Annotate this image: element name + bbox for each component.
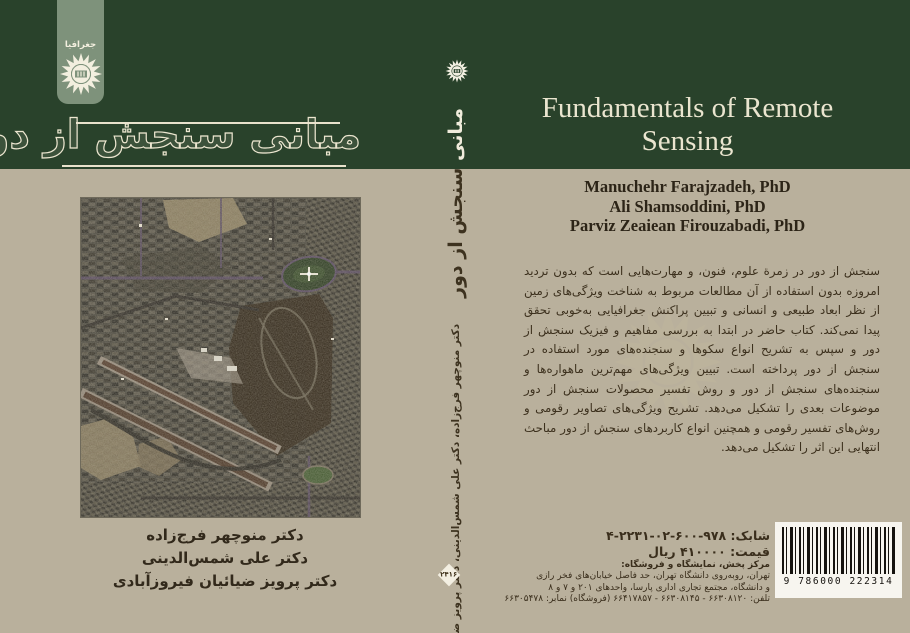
spine-samt-logo-icon xyxy=(445,59,469,83)
front-title: Fundamentals of Remote Sensing xyxy=(465,92,910,158)
address-line-2: و دانشگاه، مجتمع تجاری اداری پارسا، واحد… xyxy=(450,583,770,594)
back-title-calligraphy: مبانی سنجش از دور xyxy=(45,102,361,168)
front-authors-list: Manuchehr Farajzadeh, PhD Ali Shamsoddin… xyxy=(465,177,910,236)
price-text: قیمت: ۴۱۰۰۰۰ ریال xyxy=(450,544,770,560)
phone-line: تلفن: ۶۶۳۰۸۱۲۰ - ۶۶۳۰۸۱۴۵ - ۶۶۴۱۷۸۵۷ (فر… xyxy=(450,594,770,605)
imprint-block: شابک: ۹۷۸-۶۰۰-۰۲-۲۲۳۱-۴ قیمت: ۴۱۰۰۰۰ ریا… xyxy=(450,528,770,605)
store-heading: مرکز پخش، نمایشگاه و فروشگاه: xyxy=(450,560,770,571)
front-title-line2: Sensing xyxy=(465,125,910,158)
spine-title: مبانی سنجش از دور xyxy=(445,108,467,298)
isbn-text: شابک: ۹۷۸-۶۰۰-۰۲-۲۲۳۱-۴ xyxy=(450,528,770,544)
front-author-1: Manuchehr Farajzadeh, PhD xyxy=(465,177,910,197)
samt-publisher-logo-icon xyxy=(59,51,103,97)
barcode-bars xyxy=(782,527,896,574)
back-author-3: دکتر پرویز ضیائیان فیروزآبادی xyxy=(95,570,355,593)
front-author-3: Parviz Zeaiean Firouzabadi, PhD xyxy=(465,216,910,236)
satellite-photo xyxy=(80,197,361,518)
front-author-2: Ali Shamsoddini, PhD xyxy=(465,197,910,217)
back-authors-list: دکتر منوچهر فرج‌زاده دکتر علی شمس‌الدینی… xyxy=(95,524,355,593)
front-title-line1: Fundamentals of Remote xyxy=(465,92,910,125)
barcode: 9 786000 222314 xyxy=(775,522,902,598)
category-band: جغرافيا xyxy=(57,0,104,104)
book-cover-spread: جغرافيا مبانی سنجش از دور xyxy=(0,0,910,633)
back-author-2: دکتر علی شمس‌الدینی xyxy=(95,547,355,570)
category-label: جغرافيا xyxy=(65,40,96,50)
address-line-1: تهران، روبه‌روی دانشگاه تهران، حد فاصل خ… xyxy=(450,571,770,582)
description-paragraph: سنجش از دور در زمرة علوم، فنون، و مهارت‌… xyxy=(524,262,880,458)
back-author-1: دکتر منوچهر فرج‌زاده xyxy=(95,524,355,547)
title-rule-bottom xyxy=(62,165,346,167)
barcode-digits: 9 786000 222314 xyxy=(784,576,894,587)
